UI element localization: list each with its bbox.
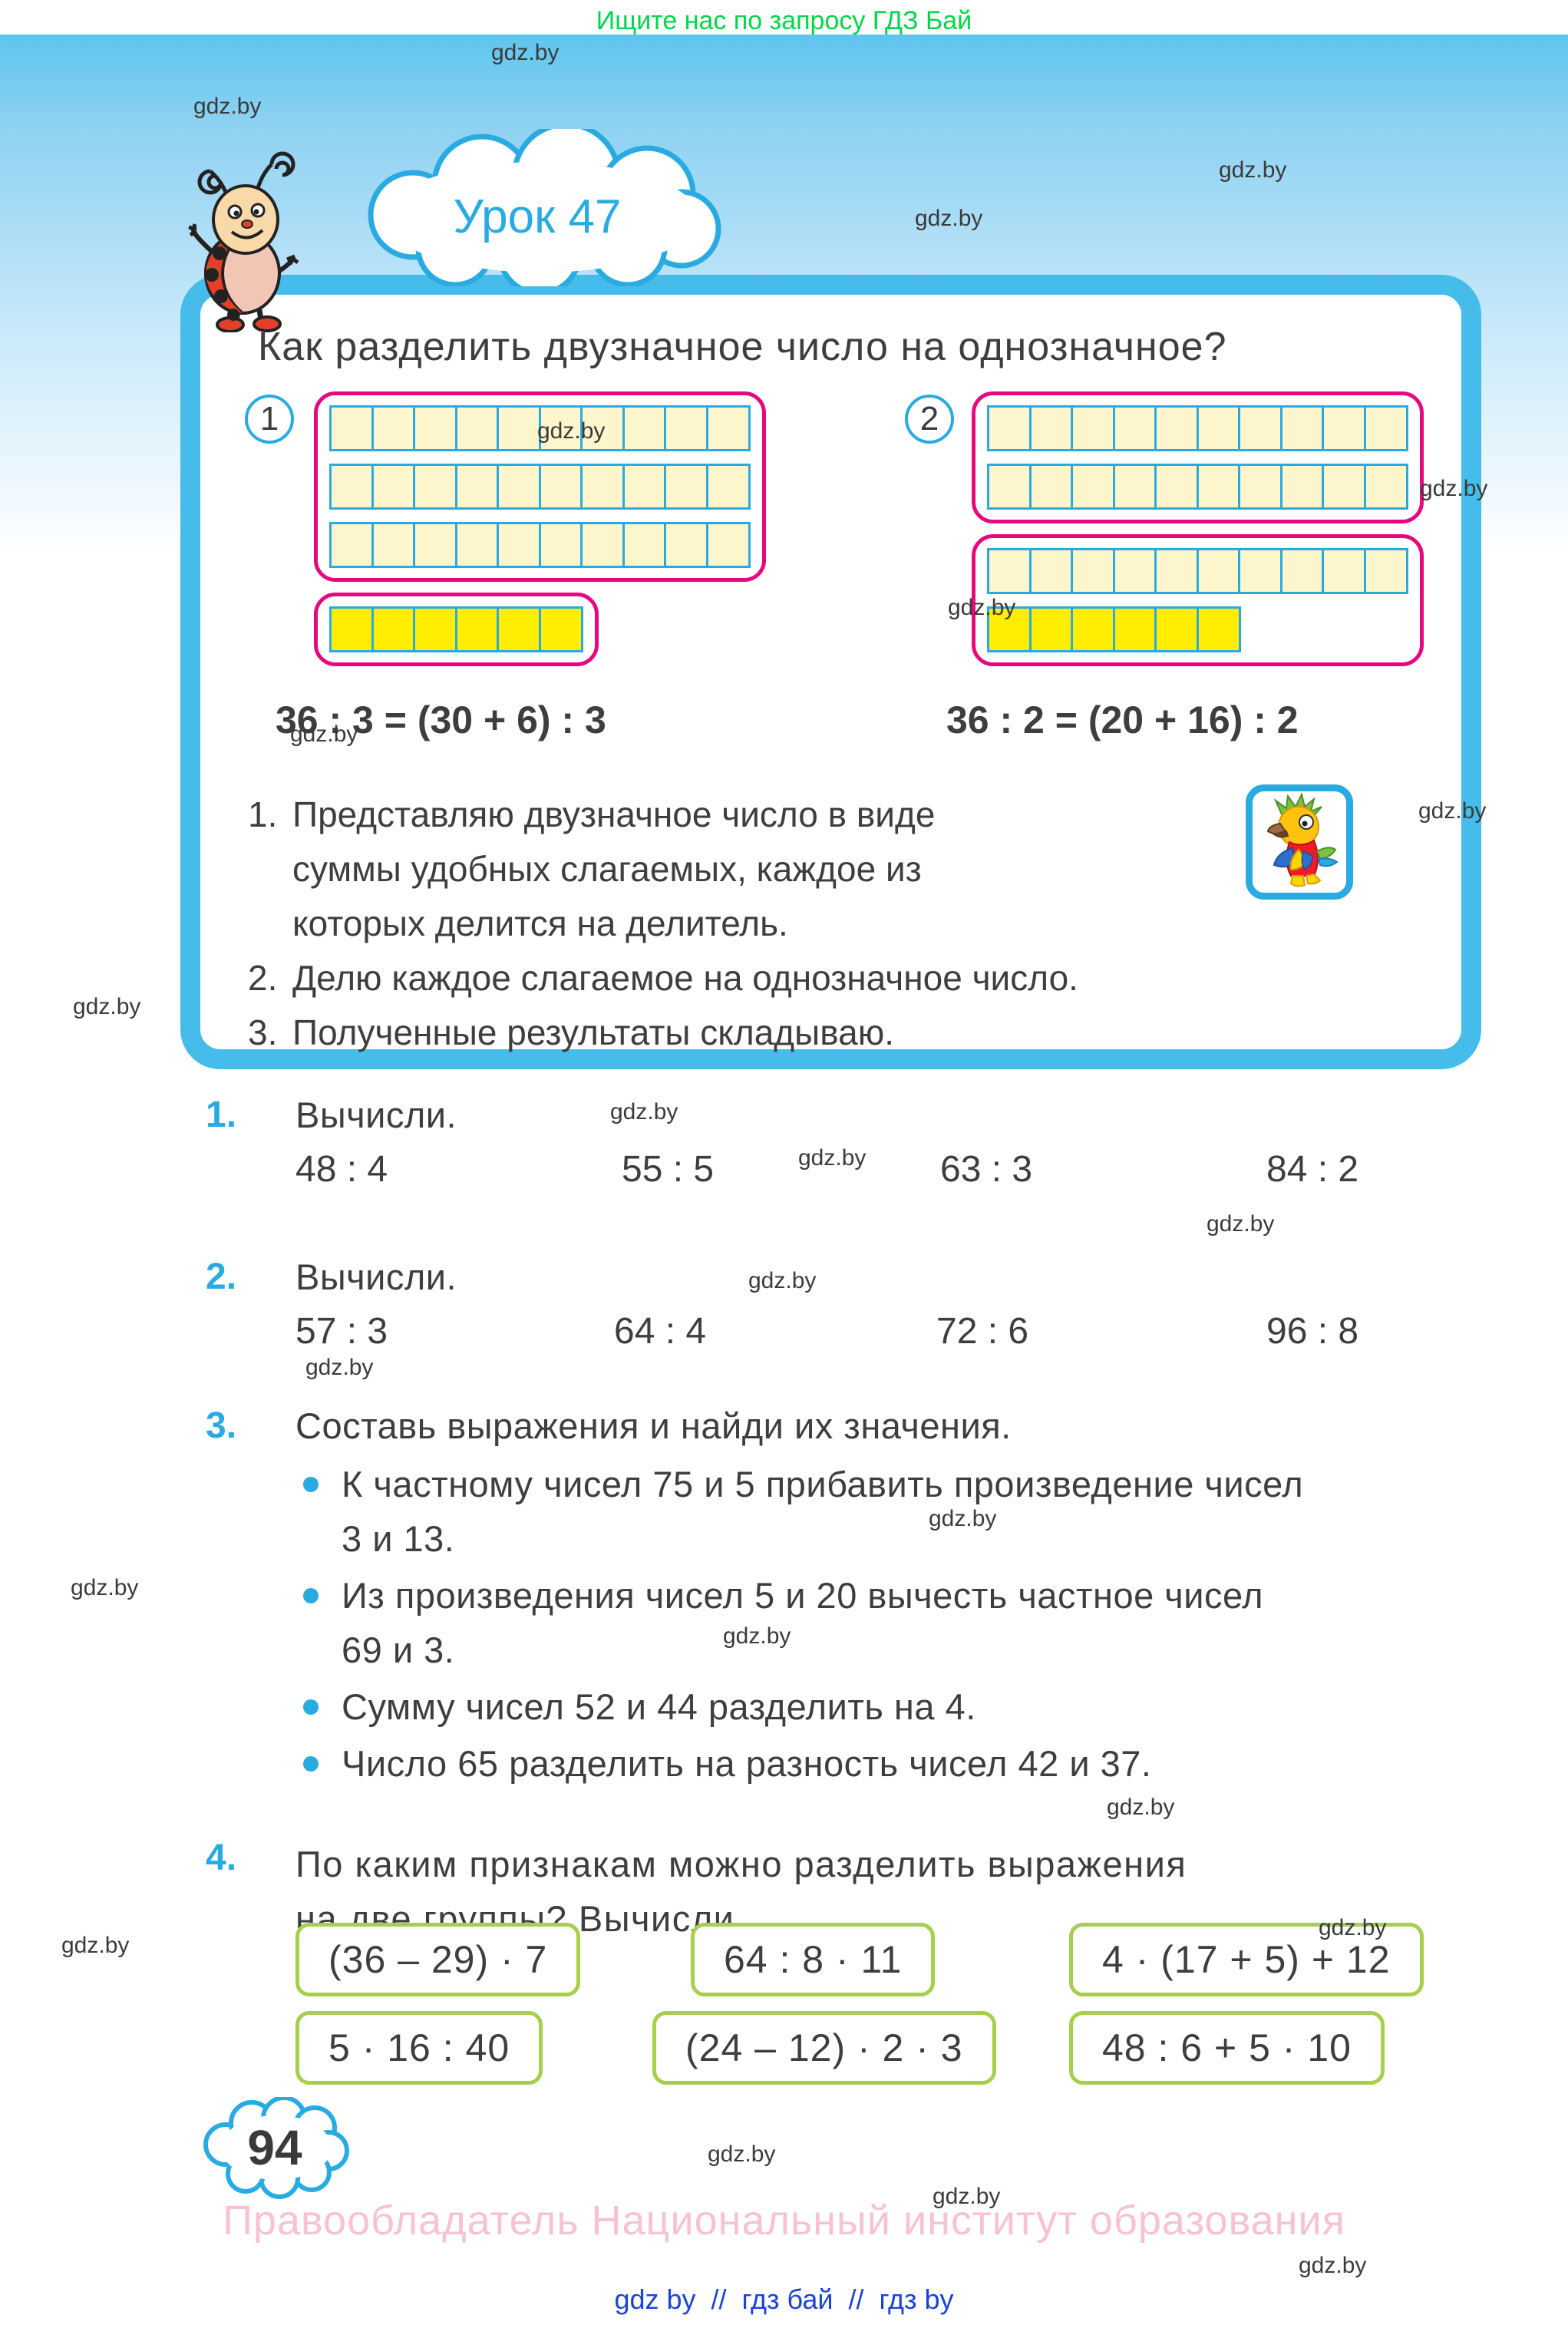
unit-cell <box>1238 405 1282 451</box>
unit-cell <box>1364 548 1408 594</box>
exercise-2-item: 96 : 8 <box>1266 1310 1358 1352</box>
exercise-1-item: 48 : 4 <box>295 1148 388 1190</box>
diagram-1-number: 1 <box>245 395 294 444</box>
footer-link-gdz-bai[interactable]: гдз бай <box>742 2284 834 2315</box>
gdz-watermark: gdz.by <box>948 595 1015 621</box>
diagram-2-grid-tens <box>972 391 1424 523</box>
unit-cell <box>664 405 708 451</box>
unit-cell <box>497 464 541 510</box>
unit-cell <box>987 464 1032 510</box>
bullet-text: Из произведения чисел 5 и 20 вычесть час… <box>342 1568 1305 1677</box>
unit-cell <box>329 464 374 510</box>
equation-2: 36 : 2 = (20 + 16) : 2 <box>946 698 1299 742</box>
step-2: 2. Делю каждое слагаемое на однозначное … <box>248 951 1269 1006</box>
step-3-text: Полученные результаты складываю. <box>292 1006 1269 1060</box>
tens-cells-row <box>329 464 751 510</box>
bullet-text: Сумму чисел 52 и 44 разделить на 4. <box>342 1679 976 1734</box>
gdz-watermark: gdz.by <box>1219 157 1286 183</box>
unit-cell-yellow <box>455 606 500 652</box>
unit-cell <box>1029 464 1074 510</box>
gdz-watermark: gdz.by <box>933 2184 1000 2210</box>
unit-cell <box>1113 548 1157 594</box>
unit-cell <box>413 405 457 451</box>
unit-cell-yellow <box>497 606 541 652</box>
unit-cell-yellow <box>1154 606 1199 652</box>
gdz-watermark: gdz.by <box>71 1575 138 1601</box>
diagram-2-number: 2 <box>905 395 954 444</box>
unit-cell <box>1154 405 1199 451</box>
expression-box: 64 : 8 · 11 <box>691 1923 935 1996</box>
unit-cell <box>580 464 625 510</box>
link-separator: // <box>711 2284 727 2315</box>
parrot-mascot-box <box>1246 784 1353 900</box>
unit-cell-yellow <box>1071 606 1115 652</box>
copyright-text: Правообладатель Национальный институт об… <box>0 2197 1568 2244</box>
unit-cell-yellow <box>371 606 416 652</box>
bullet-dot-icon <box>303 1699 319 1715</box>
gdz-watermark: gdz.by <box>708 2142 775 2168</box>
lesson-cloud: Урок 47 <box>340 129 735 286</box>
unit-cell <box>1071 464 1115 510</box>
gdz-watermark: gdz.by <box>1319 1915 1386 1941</box>
footer-link-gdz-by-2[interactable]: гдз by <box>880 2284 954 2315</box>
unit-cell <box>987 405 1032 451</box>
unit-cell <box>371 464 416 510</box>
step-2-text: Делю каждое слагаемое на однозначное чис… <box>292 951 1269 1006</box>
parrot-icon <box>1253 791 1346 893</box>
unit-cell <box>1113 464 1157 510</box>
unit-cell <box>1029 405 1074 451</box>
bullet-dot-icon <box>303 1477 319 1492</box>
unit-cell <box>1322 405 1366 451</box>
exercise-3-bullets: К частному чисел 75 и 5 прибавить произв… <box>303 1457 1324 1793</box>
unit-cell <box>664 464 708 510</box>
gdz-watermark: gdz.by <box>748 1268 816 1294</box>
diagram-1-grid-ones <box>314 593 599 666</box>
step-2-number: 2. <box>248 951 292 1006</box>
exercise-3-title: Составь выражения и найди их значения. <box>295 1405 1012 1447</box>
unit-cell <box>1071 405 1115 451</box>
promo-banner-text: Ищите нас по запросу ГДЗ Бай <box>0 6 1568 36</box>
unit-cell <box>706 464 751 510</box>
expression-box: 5 · 16 : 40 <box>295 2011 543 2085</box>
gdz-watermark: gdz.by <box>1418 798 1486 824</box>
bullet-dot-icon <box>303 1588 319 1603</box>
unit-cell <box>371 522 416 568</box>
gdz-watermark: gdz.by <box>290 722 358 748</box>
exercise-1-title: Вычисли. <box>295 1094 457 1136</box>
unit-cell <box>1113 405 1157 451</box>
ones-cells-row <box>987 606 1408 652</box>
unit-cell <box>580 522 625 568</box>
unit-cell <box>413 464 457 510</box>
gdz-watermark: gdz.by <box>915 206 982 232</box>
textbook-page: Ищите нас по запросу ГДЗ Бай <box>0 0 1568 2338</box>
gdz-watermark: gdz.by <box>73 994 140 1020</box>
unit-cell <box>455 522 500 568</box>
exercise-2-title: Вычисли. <box>295 1256 457 1298</box>
exercise-3-number: 3. <box>206 1405 236 1447</box>
theory-box: Как разделить двузначное число на однозн… <box>180 275 1481 1069</box>
unit-cell-yellow <box>1197 606 1241 652</box>
step-1: 1. Представляю двузначное число в виде с… <box>248 788 1269 951</box>
gdz-watermark: gdz.by <box>1107 1795 1174 1821</box>
unit-cell <box>706 522 751 568</box>
unit-cell-yellow <box>1029 606 1074 652</box>
unit-cell <box>371 405 416 451</box>
solution-steps: 1. Представляю двузначное число в виде с… <box>248 788 1269 1060</box>
unit-cell <box>329 522 374 568</box>
unit-cell <box>1322 548 1366 594</box>
bullet-text: К частному чисел 75 и 5 прибавить произв… <box>342 1457 1305 1566</box>
unit-cell <box>1280 464 1325 510</box>
unit-cell-yellow <box>329 606 374 652</box>
expression-box: (24 – 12) · 2 · 3 <box>652 2011 996 2085</box>
unit-cell <box>622 464 667 510</box>
ladybug-illustration <box>183 137 309 332</box>
gdz-watermark: gdz.by <box>1207 1211 1274 1237</box>
tens-cells-row <box>987 405 1408 451</box>
step-3-number: 3. <box>248 1006 292 1060</box>
bullet-item: Число 65 разделить на разность чисел 42 … <box>303 1736 1324 1791</box>
unit-cell <box>329 405 374 451</box>
unit-cell <box>497 522 541 568</box>
page-number: 94 <box>247 2120 302 2175</box>
tens-cells-row <box>987 464 1408 510</box>
lesson-badge: Урок 47 <box>454 190 622 243</box>
gdz-watermark: gdz.by <box>929 1506 996 1532</box>
bullet-item: Из произведения чисел 5 и 20 вычесть час… <box>303 1568 1324 1677</box>
tens-cells-row <box>987 548 1408 594</box>
unit-cell <box>1197 548 1241 594</box>
unit-cell <box>413 522 457 568</box>
gdz-watermark: gdz.by <box>1420 476 1487 502</box>
gdz-watermark: gdz.by <box>798 1145 866 1171</box>
gdz-watermark: gdz.by <box>491 40 559 66</box>
gdz-watermark: gdz.by <box>305 1355 373 1381</box>
bullet-text: Число 65 разделить на разность чисел 42 … <box>342 1736 1152 1791</box>
step-3: 3. Полученные результаты складываю. <box>248 1006 1269 1060</box>
unit-cell <box>497 405 541 451</box>
gdz-watermark: gdz.by <box>537 418 605 444</box>
unit-cell-yellow <box>1113 606 1157 652</box>
exercise-2-item: 64 : 4 <box>614 1310 706 1352</box>
expression-box: 48 : 6 + 5 · 10 <box>1069 2011 1385 2085</box>
footer-links: gdz by//гдз бай//гдз by <box>0 2284 1568 2316</box>
bullet-item: К частному чисел 75 и 5 прибавить произв… <box>303 1457 1324 1566</box>
unit-cell <box>1197 464 1241 510</box>
tens-cells-row <box>329 522 751 568</box>
ones-cells-row <box>329 606 583 652</box>
unit-cell <box>622 405 667 451</box>
unit-cell <box>1071 548 1115 594</box>
theory-title: Как разделить двузначное число на однозн… <box>258 324 1455 370</box>
unit-cell <box>1364 405 1408 451</box>
unit-cell <box>1280 405 1325 451</box>
page-number-cloud: 94 <box>193 2097 358 2201</box>
unit-cell <box>706 405 751 451</box>
unit-cell <box>539 522 583 568</box>
bullet-dot-icon <box>303 1756 319 1772</box>
unit-cell <box>1238 464 1282 510</box>
link-separator: // <box>848 2284 863 2315</box>
exercise-2-item: 57 : 3 <box>295 1310 388 1352</box>
unit-cell <box>1280 548 1325 594</box>
unit-cell <box>455 405 500 451</box>
exercise-1-item: 63 : 3 <box>940 1148 1032 1190</box>
unit-cell <box>1197 405 1241 451</box>
gdz-watermark: gdz.by <box>193 94 261 120</box>
exercise-1-item: 84 : 2 <box>1266 1148 1358 1190</box>
unit-cell <box>622 522 667 568</box>
bullet-item: Сумму чисел 52 и 44 разделить на 4. <box>303 1679 1324 1734</box>
step-1-number: 1. <box>248 788 292 951</box>
unit-cell <box>1238 548 1282 594</box>
unit-cell <box>987 548 1032 594</box>
exercise-2-item: 72 : 6 <box>936 1310 1028 1352</box>
unit-cell <box>1029 548 1074 594</box>
step-1-text: Представляю двузначное число в виде сумм… <box>292 788 987 951</box>
footer-link-gdz-by[interactable]: gdz by <box>614 2284 695 2315</box>
unit-cell <box>1154 548 1199 594</box>
unit-cell <box>455 464 500 510</box>
exercise-1-number: 1. <box>206 1094 236 1136</box>
exercise-1-item: 55 : 5 <box>622 1148 714 1190</box>
exercise-4-number: 4. <box>206 1837 236 1879</box>
unit-cell <box>1154 464 1199 510</box>
exercise-2-number: 2. <box>206 1256 236 1298</box>
unit-cell <box>1322 464 1366 510</box>
unit-cell-yellow <box>539 606 583 652</box>
unit-cell <box>1364 464 1408 510</box>
gdz-watermark: gdz.by <box>723 1623 791 1649</box>
unit-cell <box>664 522 708 568</box>
gdz-watermark: gdz.by <box>61 1933 129 1959</box>
gdz-watermark: gdz.by <box>1299 2253 1366 2279</box>
gdz-watermark: gdz.by <box>610 1099 678 1125</box>
unit-cell <box>539 464 583 510</box>
expression-box: (36 – 29) · 7 <box>295 1923 580 1996</box>
unit-cell-yellow <box>413 606 457 652</box>
diagram-2-grid-mixed <box>972 534 1424 666</box>
